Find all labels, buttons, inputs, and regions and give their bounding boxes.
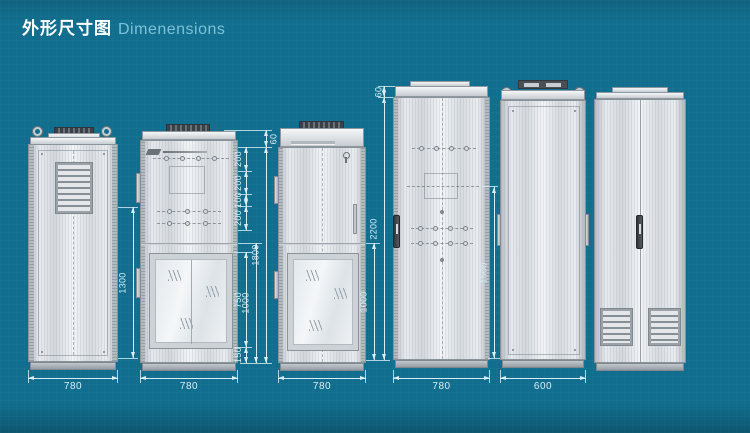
cabinet-2-base [142, 363, 236, 371]
side-panel [508, 106, 580, 355]
dim-label: 1300 [117, 272, 127, 293]
dim-cab4-width: 780 [393, 378, 490, 379]
control-button-icon [185, 221, 190, 226]
glass-shine [168, 270, 181, 281]
glass-shine [334, 288, 347, 299]
dim-label: 780 [180, 381, 198, 392]
control-button-icon [433, 241, 438, 246]
cabinet-3-base [280, 363, 364, 371]
key-lock-icon [345, 157, 347, 163]
control-button-icon [167, 209, 172, 214]
indicator-lamp-icon [212, 156, 217, 161]
control-button-icon [203, 209, 208, 214]
dim-cab2-total: 1800 [266, 147, 267, 363]
brand-logo [146, 149, 162, 155]
dim-label: 1500 [478, 262, 488, 283]
cabinet-5-cap [501, 90, 585, 100]
cabinet-6-base [596, 363, 684, 371]
cabinet-5-base [502, 360, 584, 368]
control-button-icon [167, 221, 172, 226]
dim-cab1-height: 1300 [133, 207, 134, 358]
cabinet-1-base [30, 362, 116, 370]
control-button-icon [418, 241, 423, 246]
indicator-lamp-icon [196, 156, 201, 161]
indicator-lamp-icon [419, 146, 424, 151]
control-button-icon [203, 221, 208, 226]
glass-door [293, 259, 353, 345]
dim-cab2-seg4: 200 [246, 206, 247, 230]
dim-cab1-width: 780 [28, 378, 118, 379]
indicator-lamp-icon [164, 156, 169, 161]
glass-door [155, 259, 227, 343]
door-handle-icon [636, 215, 643, 249]
dim-label: 60 [374, 86, 384, 97]
dim-cab2-lower: 1000 [256, 243, 257, 363]
control-button-icon [448, 241, 453, 246]
dim-cab5-front: 1500 [494, 187, 495, 358]
cabinet-2-body [140, 140, 238, 363]
cabinet-4-base [395, 360, 488, 368]
dim-label: 150 [233, 347, 243, 363]
control-button-icon [433, 226, 438, 231]
page-title: 外形尺寸图Dimenensions [22, 14, 225, 39]
hinge-icon [497, 214, 501, 246]
dim-label: 200 [233, 210, 243, 226]
indicator-lamp-icon [434, 146, 439, 151]
dim-cab2-seg2: 200 [246, 171, 247, 194]
hinge-icon [136, 173, 141, 203]
dim-label: 780 [313, 381, 331, 392]
hinge-icon [274, 176, 279, 204]
dim-label: 200 [233, 175, 243, 191]
dimension-drawing: 外形尺寸图Dimenensions 1300 780 [0, 0, 750, 433]
section-divider [279, 243, 365, 245]
title-english: Dimenensions [118, 21, 225, 38]
dim-cab2-width: 780 [140, 378, 238, 379]
dim-cab3-width: 780 [278, 378, 366, 379]
dim-label: 780 [432, 381, 450, 392]
dim-cab2-bottom: 150 [246, 347, 247, 363]
glass-shine [306, 270, 319, 281]
cabinet-4-body [393, 97, 490, 360]
indicator-lamp-icon [449, 146, 454, 151]
louver-vent-icon [56, 163, 92, 213]
dim-cab4-total: 2200 [384, 97, 385, 360]
glass-shine [309, 320, 322, 331]
dim-cab2-seg1: 200 [246, 147, 247, 171]
meter-window [169, 166, 205, 194]
lifting-eye-icon [102, 127, 111, 136]
dim-label: 200 [233, 151, 243, 167]
handle-slot [353, 204, 357, 234]
cabinet-6-cap [596, 92, 684, 99]
section-divider [141, 243, 237, 245]
dim-label: 1000 [240, 292, 250, 313]
glass-shine [206, 286, 219, 297]
glass-door-frame [149, 253, 233, 349]
dim-label: 2200 [368, 218, 378, 239]
dim-cab5-width: 600 [500, 378, 586, 379]
cabinet-5-body [500, 100, 586, 360]
cabinet-4-cap [395, 86, 488, 97]
louver-vent-icon [649, 309, 680, 345]
control-button-icon [185, 209, 190, 214]
title-chinese: 外形尺寸图 [22, 19, 112, 38]
dim-cab2-seg3: 100 [246, 194, 247, 206]
hinge-icon [136, 268, 141, 298]
cabinet-2-cap [142, 131, 236, 140]
cabinet-3-body [278, 147, 366, 363]
glass-door-frame [287, 253, 359, 351]
dim-cab2-cap: 60 [266, 130, 267, 147]
glass-shine [180, 318, 193, 329]
indicator-lamp-icon [464, 146, 469, 151]
dim-cab3-lower: 1000 [374, 243, 375, 360]
door-handle-icon [393, 215, 400, 248]
dim-label: 1000 [358, 291, 368, 312]
control-button-icon [448, 226, 453, 231]
roof-handle-icon [518, 80, 568, 89]
control-button-icon [418, 226, 423, 231]
louver-vent-icon [601, 309, 632, 345]
dim-label: 600 [534, 381, 552, 392]
cabinet-1-body [28, 144, 118, 362]
control-button-icon [463, 241, 468, 246]
cabinet-3-cap [280, 128, 364, 147]
dim-label: 100 [233, 192, 243, 208]
dim-label: 780 [64, 381, 82, 392]
dim-label: 60 [268, 133, 278, 144]
hinge-icon [585, 214, 589, 246]
control-button-icon [463, 226, 468, 231]
dim-cab4-cap: 60 [384, 86, 385, 97]
indicator-lamp-icon [180, 156, 185, 161]
lifting-eye-icon [33, 127, 42, 136]
hinge-icon [274, 271, 279, 299]
